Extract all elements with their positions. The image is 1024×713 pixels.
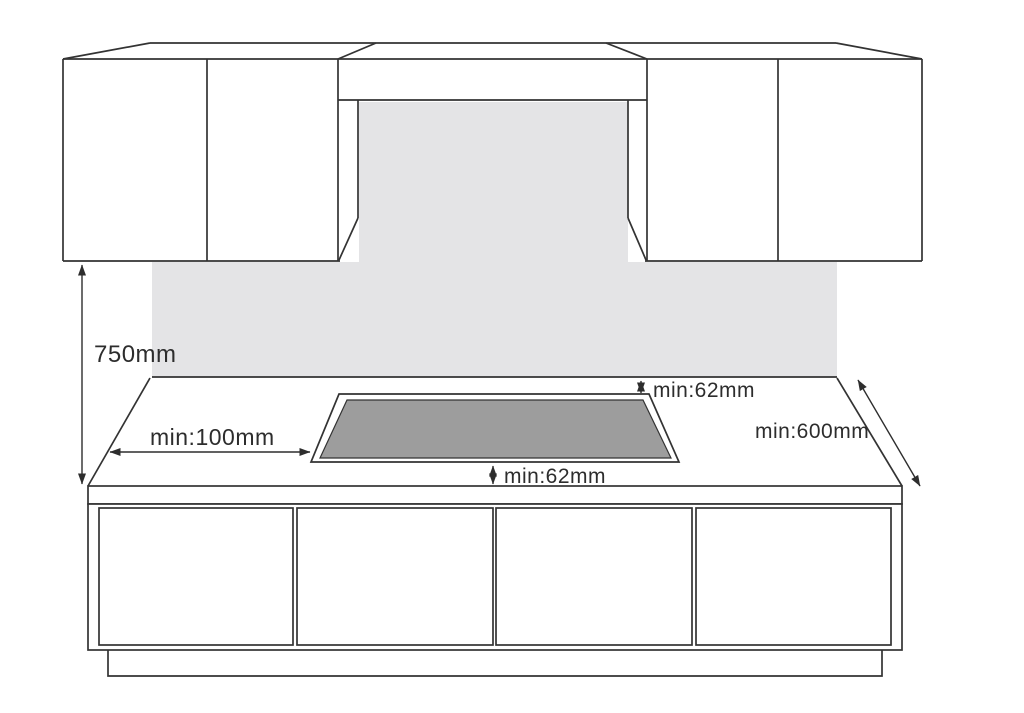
base-cabinet-door-2	[297, 508, 493, 645]
dimension-label-min-62mm-rear: min:62mm	[653, 379, 755, 402]
hood-top-left-corner	[338, 43, 376, 59]
cooktop-glass-surface	[320, 400, 671, 458]
hood-top-right-corner	[606, 43, 647, 59]
dimension-label-min-100mm: min:100mm	[150, 424, 275, 450]
worktop-left-side-edge	[88, 378, 150, 486]
dimension-label-min-600mm: min:600mm	[755, 420, 869, 443]
left-cabinet-top-corner	[63, 43, 150, 59]
hood-right-side-taper	[628, 218, 646, 260]
base-cabinet-door-4	[696, 508, 891, 645]
diagram-canvas: 750mm min:100mm min:62mm min:62mm min:60…	[0, 0, 1024, 713]
base-cabinet-door-1	[99, 508, 293, 645]
backsplash-wall	[152, 102, 837, 377]
kitchen-installation-diagram: 750mm min:100mm min:62mm min:62mm min:60…	[0, 0, 1024, 713]
hood-left-side-taper	[339, 218, 358, 260]
right-cabinet-top-corner	[836, 43, 922, 59]
worktop-front-edge-band	[88, 486, 902, 504]
base-cabinet-plinth	[108, 650, 882, 676]
dimension-label-750mm: 750mm	[94, 341, 177, 368]
dimension-label-min-62mm-front: min:62mm	[504, 465, 606, 488]
base-cabinet-door-3	[496, 508, 692, 645]
